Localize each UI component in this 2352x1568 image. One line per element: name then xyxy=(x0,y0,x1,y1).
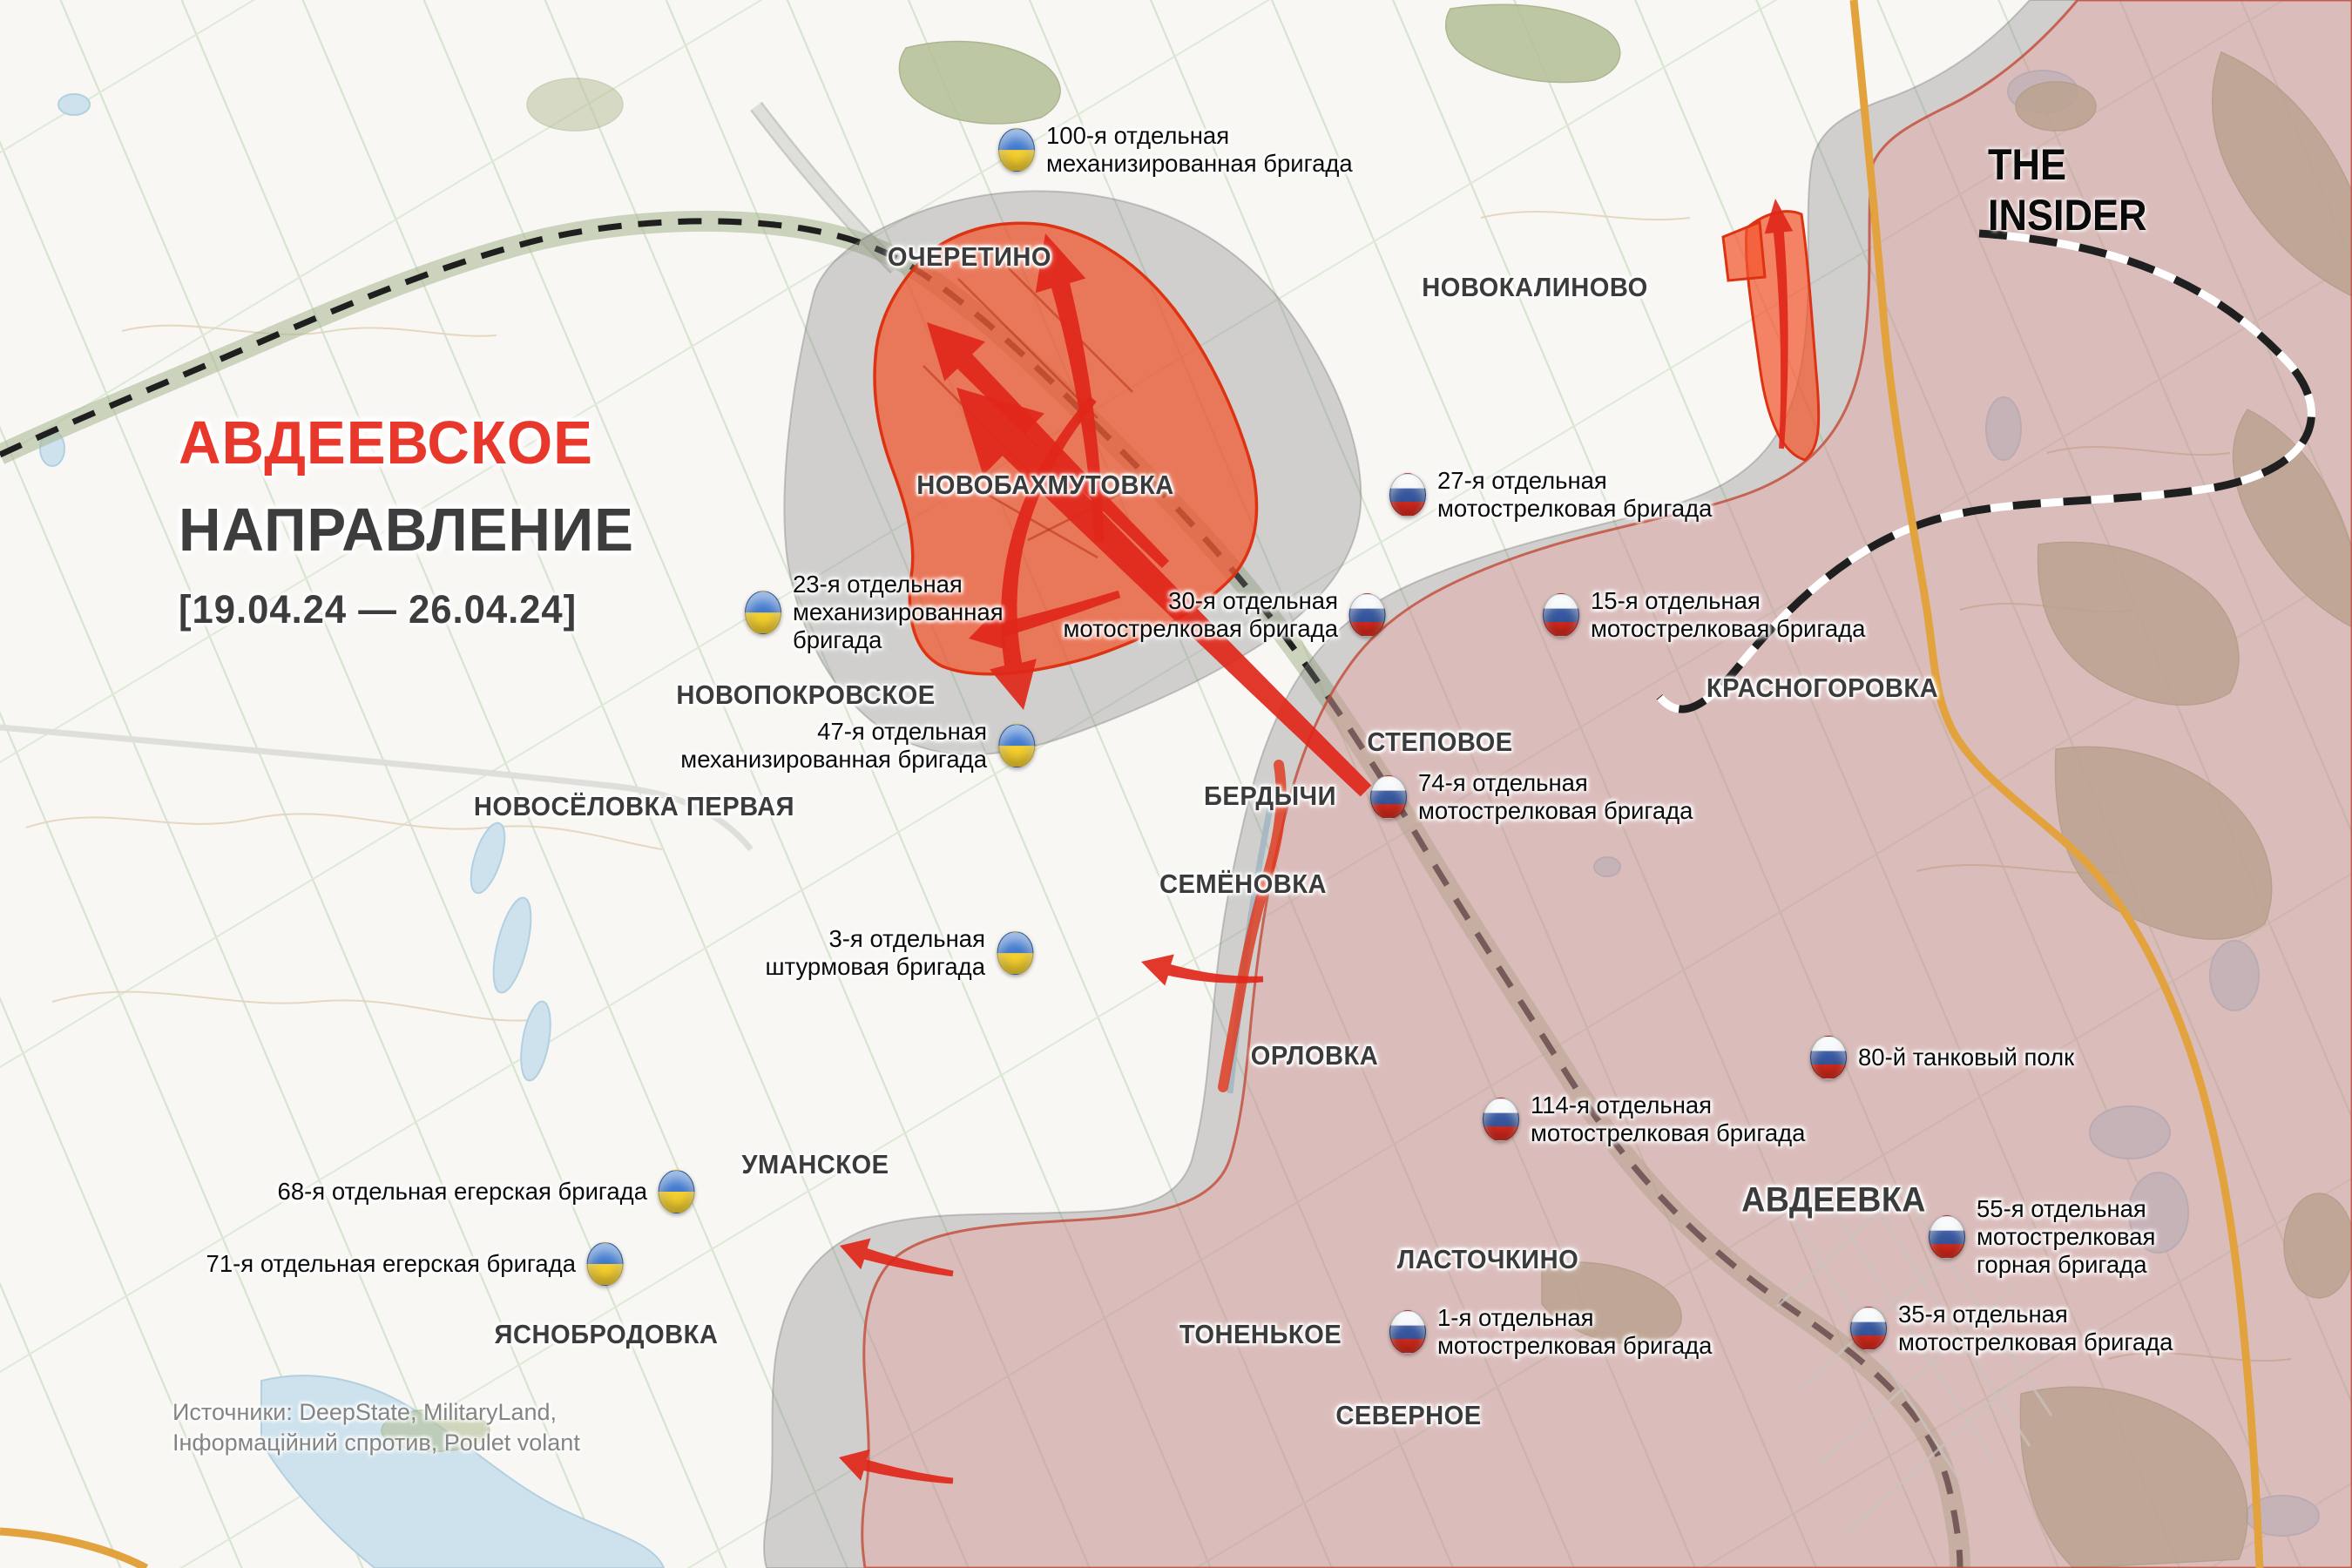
ukraine-flag-icon xyxy=(998,724,1035,767)
sources-note: Источники: DeepState, MilitaryLand, Інфо… xyxy=(172,1397,580,1458)
unit-marker-ru-80: 80-й танковый полк xyxy=(1810,1036,2074,1079)
unit-marker-ru-35: 35-я отдельнаямотострелковая бригада xyxy=(1850,1301,2173,1356)
sources-line-1: Источники: DeepState, MilitaryLand, xyxy=(172,1397,580,1428)
unit-label: 47-я отдельнаямеханизированная бригада xyxy=(680,718,987,774)
settlement-label: ОРЛОВКА xyxy=(1251,1040,1379,1071)
ukraine-flag-icon xyxy=(745,591,781,634)
ukraine-flag-icon xyxy=(998,128,1035,172)
settlement-label: БЕРДЫЧИ xyxy=(1204,781,1336,812)
unit-marker-ru-27: 27-я отдельнаямотострелковая бригада xyxy=(1389,467,1712,523)
settlement-label: НОВОСЁЛОВКА ПЕРВАЯ xyxy=(474,791,794,822)
unit-marker-ua-47: 47-я отдельнаямеханизированная бригада xyxy=(680,718,1035,774)
settlement-label: ОЧЕРЕТИНО xyxy=(888,241,1051,273)
unit-label: 74-я отдельнаямотострелковая бригада xyxy=(1418,769,1693,825)
map-infographic: АВДЕЕВСКОЕ НАПРАВЛЕНИЕ [19.04.24 — 26.04… xyxy=(0,0,2352,1568)
unit-marker-ru-114: 114-я отдельнаямотострелковая бригада xyxy=(1483,1092,1805,1147)
unit-marker-ua-100: 100-я отдельнаямеханизированная бригада xyxy=(998,122,1353,178)
russia-flag-icon xyxy=(1810,1036,1847,1079)
unit-marker-ua-71: 71-я отдельная егерская бригада xyxy=(206,1242,624,1286)
russia-flag-icon xyxy=(1370,775,1407,819)
settlement-label: НОВОПОКРОВСКОЕ xyxy=(676,679,935,711)
unit-marker-ru-55: 55-я отдельнаямотострелковаягорная брига… xyxy=(1929,1195,2155,1279)
settlement-label: УМАНСКОЕ xyxy=(741,1149,889,1180)
ukraine-flag-icon xyxy=(659,1170,695,1213)
title-subheading: НАПРАВЛЕНИЕ xyxy=(179,495,634,564)
settlement-label: КРАСНОГОРОВКА xyxy=(1707,672,1938,704)
settlement-label: СЕВЕРНОЕ xyxy=(1335,1400,1481,1431)
settlement-label: НОВОКАЛИНОВО xyxy=(1422,272,1648,303)
russia-flag-icon xyxy=(1850,1307,1887,1350)
unit-label: 80-й танковый полк xyxy=(1858,1044,2074,1071)
unit-label: 23-я отдельнаямеханизированнаябригада xyxy=(793,571,1004,654)
settlement-label: НОВОБАХМУТОВКА xyxy=(916,470,1174,501)
labels-layer: АВДЕЕВСКОЕ НАПРАВЛЕНИЕ [19.04.24 — 26.04… xyxy=(0,0,2352,1568)
unit-marker-ru-74: 74-я отдельнаямотострелковая бригада xyxy=(1370,769,1693,825)
unit-marker-ru-30: 30-я отдельнаямотострелковая бригада xyxy=(1064,587,1386,643)
unit-label: 55-я отдельнаямотострелковаягорная брига… xyxy=(1977,1195,2155,1279)
russia-flag-icon xyxy=(1483,1098,1519,1141)
unit-marker-ua-3: 3-я отдельнаяштурмовая бригада xyxy=(766,925,1034,981)
russia-flag-icon xyxy=(1389,473,1426,517)
unit-label: 114-я отдельнаямотострелковая бригада xyxy=(1531,1092,1805,1147)
russia-flag-icon xyxy=(1929,1215,1965,1259)
unit-label: 30-я отдельнаямотострелковая бригада xyxy=(1064,587,1338,643)
unit-label: 1-я отдельнаямотострелковая бригада xyxy=(1437,1304,1712,1360)
unit-label: 68-я отдельная егерская бригада xyxy=(278,1178,647,1206)
settlement-label: СТЕПОВОЕ xyxy=(1367,727,1512,758)
brand-logo: THE INSIDER xyxy=(1988,139,2160,240)
settlement-label: ТОНЕНЬКОЕ xyxy=(1179,1319,1342,1350)
unit-marker-ru-1: 1-я отдельнаямотострелковая бригада xyxy=(1389,1304,1712,1360)
title-date-range: [19.04.24 — 26.04.24] xyxy=(179,587,639,632)
unit-label: 35-я отдельнаямотострелковая бригада xyxy=(1898,1301,2173,1356)
settlement-label: АВДЕЕВКА xyxy=(1741,1181,1926,1220)
sources-line-2: Інформаційний спротив, Poulet volant xyxy=(172,1428,580,1458)
unit-label: 100-я отдельнаямеханизированная бригада xyxy=(1046,122,1353,178)
title-block: АВДЕЕВСКОЕ НАПРАВЛЕНИЕ [19.04.24 — 26.04… xyxy=(179,408,653,632)
unit-marker-ua-68: 68-я отдельная егерская бригада xyxy=(278,1170,695,1213)
ukraine-flag-icon xyxy=(997,931,1033,975)
russia-flag-icon xyxy=(1389,1310,1426,1354)
russia-flag-icon xyxy=(1543,593,1579,637)
unit-label: 15-я отдельнаямотострелковая бригада xyxy=(1591,587,1865,643)
settlement-label: ЯСНОБРОДОВКА xyxy=(495,1319,719,1350)
unit-label: 27-я отдельнаямотострелковая бригада xyxy=(1437,467,1712,523)
title-heading: АВДЕЕВСКОЕ xyxy=(179,408,634,477)
settlement-label: СЕМЁНОВКА xyxy=(1159,868,1327,900)
unit-label: 71-я отдельная егерская бригада xyxy=(206,1250,576,1278)
russia-flag-icon xyxy=(1349,593,1386,637)
unit-marker-ua-23: 23-я отдельнаямеханизированнаябригада xyxy=(745,571,1004,654)
settlement-label: ЛАСТОЧКИНО xyxy=(1397,1244,1578,1275)
unit-label: 3-я отдельнаяштурмовая бригада xyxy=(766,925,986,981)
ukraine-flag-icon xyxy=(587,1242,624,1286)
unit-marker-ru-15: 15-я отдельнаямотострелковая бригада xyxy=(1543,587,1865,643)
